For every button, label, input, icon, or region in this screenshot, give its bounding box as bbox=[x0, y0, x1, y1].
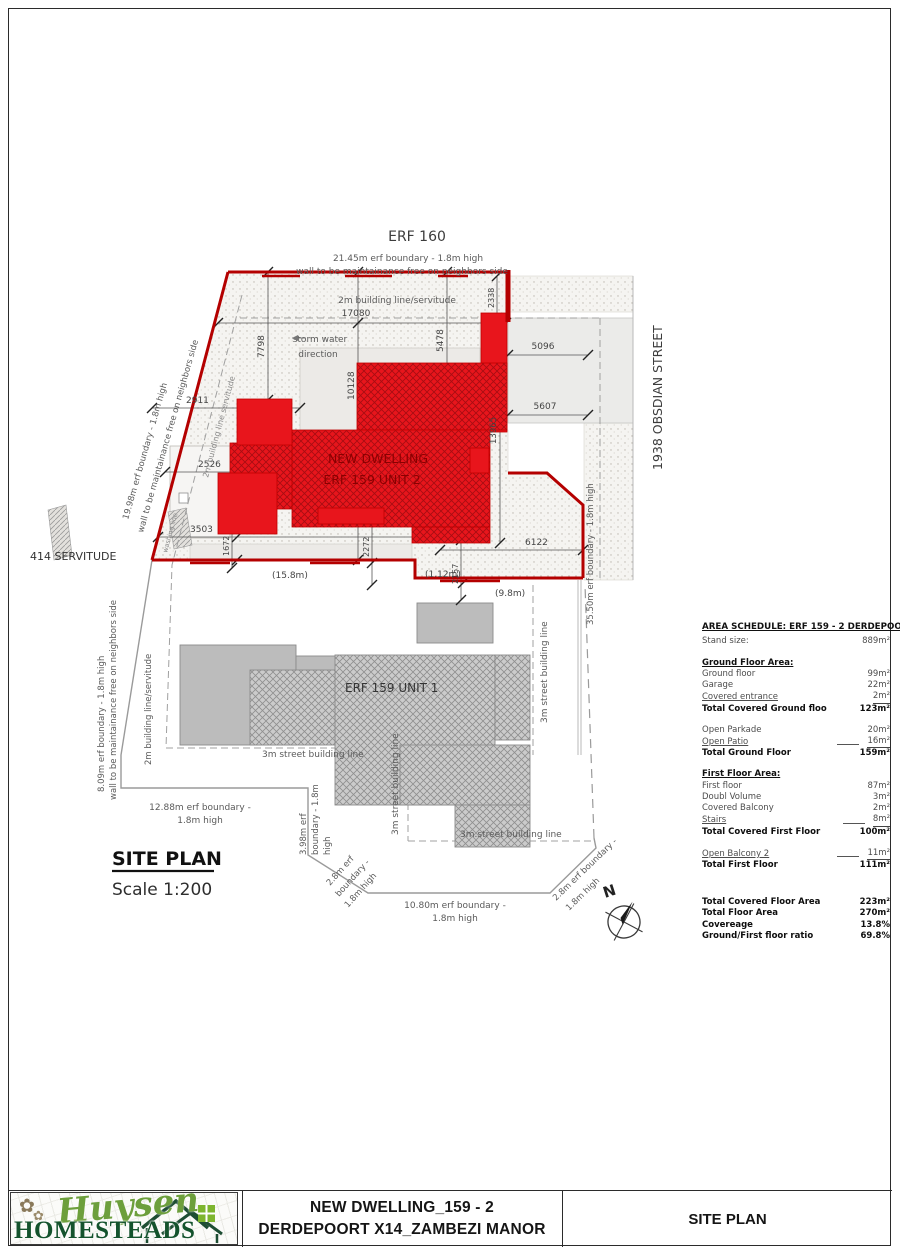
schedule-row: First floor87m² bbox=[702, 781, 890, 792]
schedule-row-label: Ground floor bbox=[702, 669, 867, 680]
svg-text:boundary - 1.8m: boundary - 1.8m bbox=[311, 784, 321, 855]
footer-separator bbox=[8, 1190, 892, 1191]
svg-text:2911: 2911 bbox=[186, 396, 209, 406]
schedule-row: Ground Floor Area: bbox=[702, 658, 890, 669]
svg-text:3.98m erf: 3.98m erf bbox=[299, 812, 309, 855]
schedule-row-label: Covereage bbox=[702, 920, 861, 931]
area-schedule-rows: Stand size:889m²Ground Floor Area:Ground… bbox=[702, 636, 890, 942]
area-schedule-title: AREA SCHEDULE: ERF 159 - 2 DERDEPOORT X1… bbox=[702, 622, 890, 633]
schedule-row: First Floor Area: bbox=[702, 769, 890, 780]
schedule-row-value: 159m² bbox=[860, 748, 890, 759]
schedule-row-label: Open Balcony 2 bbox=[702, 849, 837, 860]
svg-text:Scale 1:200: Scale 1:200 bbox=[112, 880, 212, 900]
svg-text:1.8m high: 1.8m high bbox=[177, 816, 223, 826]
svg-text:10.80m erf boundary -: 10.80m erf boundary - bbox=[404, 901, 506, 911]
svg-text:21.45m erf boundary - 1.8m hig: 21.45m erf boundary - 1.8m high bbox=[333, 254, 483, 264]
svg-text:3503: 3503 bbox=[190, 525, 213, 535]
schedule-row: Ground floor99m² bbox=[702, 669, 890, 680]
schedule-row: Covered Balcony2m² bbox=[702, 803, 890, 814]
svg-text:1672: 1672 bbox=[222, 536, 231, 556]
svg-text:NEW DWELLING: NEW DWELLING bbox=[328, 451, 428, 466]
project-title-line2: DERDEPOORT X14_ZAMBEZI MANOR bbox=[258, 1219, 545, 1241]
site-plan-page: ERF 159 UNIT 1 bbox=[0, 0, 900, 1254]
schedule-row-value: 889m² bbox=[862, 636, 890, 647]
schedule-row-value: 8m² bbox=[873, 814, 890, 826]
svg-text:5607: 5607 bbox=[534, 402, 557, 412]
servitude-label: 414 SERVITUDE bbox=[30, 550, 116, 563]
schedule-row-value: 16m² bbox=[867, 736, 890, 748]
footer-divider-1 bbox=[242, 1190, 243, 1247]
north-label: N bbox=[601, 881, 619, 902]
svg-text:5096: 5096 bbox=[532, 342, 555, 352]
schedule-row: Ground/First floor ratio69.8% bbox=[702, 931, 890, 942]
drawing-title: SITE PLAN Scale 1:200 bbox=[112, 848, 222, 900]
project-title-line1: NEW DWELLING_159 - 2 bbox=[310, 1197, 494, 1219]
svg-text:3m street building line: 3m street building line bbox=[391, 733, 401, 835]
svg-text:3m street building line: 3m street building line bbox=[540, 621, 550, 723]
schedule-row: Open Balcony 211m² bbox=[702, 848, 890, 860]
schedule-row-value: 111m² bbox=[860, 860, 890, 871]
svg-text:1.8m high: 1.8m high bbox=[432, 914, 478, 924]
area-schedule: AREA SCHEDULE: ERF 159 - 2 DERDEPOORT X1… bbox=[702, 622, 890, 942]
schedule-row-label: Covered Balcony bbox=[702, 803, 873, 814]
schedule-row: Stairs8m² bbox=[702, 814, 890, 826]
north-arrow: N bbox=[596, 881, 653, 951]
unit1-label: ERF 159 UNIT 1 bbox=[345, 681, 438, 695]
svg-text:3m street building line: 3m street building line bbox=[262, 750, 364, 760]
svg-text:8.09m erf boundary - 1.8m high: 8.09m erf boundary - 1.8m high bbox=[97, 656, 107, 792]
svg-text:ERF 159 UNIT 2: ERF 159 UNIT 2 bbox=[323, 472, 420, 487]
schedule-row-value: 2m² bbox=[873, 691, 890, 703]
svg-text:wall to be maintainance free o: wall to be maintainance free on neighbor… bbox=[296, 267, 508, 277]
svg-text:35.50m erf boundary - 1.8m hig: 35.50m erf boundary - 1.8m high bbox=[586, 483, 596, 625]
svg-text:13965: 13965 bbox=[489, 417, 499, 444]
footer-divider-2 bbox=[562, 1190, 563, 1247]
schedule-leader-dash bbox=[837, 856, 859, 857]
schedule-row-label: Open Patio bbox=[702, 737, 837, 748]
schedule-row: Stand size:889m² bbox=[702, 636, 890, 647]
schedule-row-value: 123m² bbox=[860, 704, 890, 715]
schedule-row: Total Ground Floor159m² bbox=[702, 748, 890, 759]
schedule-row-label: Total Covered Ground floo bbox=[702, 704, 860, 715]
schedule-row: Garage22m² bbox=[702, 680, 890, 691]
svg-text:2338: 2338 bbox=[487, 288, 496, 308]
schedule-row-label: First floor bbox=[702, 781, 867, 792]
schedule-row-value: 69.8% bbox=[861, 931, 891, 942]
svg-text:(9.8m): (9.8m) bbox=[495, 589, 525, 599]
schedule-row-label: Garage bbox=[702, 680, 867, 691]
schedule-row-label: Total Covered First Floor bbox=[702, 827, 860, 838]
svg-text:SITE PLAN: SITE PLAN bbox=[112, 848, 222, 870]
schedule-row: Total Covered Floor Area223m² bbox=[702, 897, 890, 908]
svg-text:2272: 2272 bbox=[362, 537, 371, 557]
schedule-row-label: First Floor Area: bbox=[702, 769, 890, 780]
schedule-row-label: Open Parkade bbox=[702, 725, 867, 736]
schedule-row-value: 99m² bbox=[867, 669, 890, 680]
svg-text:2m building line/servitude: 2m building line/servitude bbox=[144, 654, 154, 765]
schedule-row-label: Total Covered Floor Area bbox=[702, 897, 860, 908]
svg-text:6122: 6122 bbox=[525, 538, 548, 548]
erf160-label: ERF 160 bbox=[388, 229, 446, 245]
schedule-row-label: Stand size: bbox=[702, 636, 862, 647]
company-logo: ✿ ✿ Huysen HOMESTEADS bbox=[10, 1192, 238, 1245]
schedule-row: Total Floor Area270m² bbox=[702, 908, 890, 919]
schedule-row-label: Ground/First floor ratio bbox=[702, 931, 861, 942]
schedule-row: Total Covered Ground floo123m² bbox=[702, 704, 890, 715]
schedule-row-label: Doubl Volume bbox=[702, 792, 873, 803]
schedule-row-value: 100m² bbox=[860, 827, 890, 838]
svg-text:(15.8m): (15.8m) bbox=[272, 571, 308, 581]
schedule-row-value: 13.8% bbox=[861, 920, 891, 931]
schedule-row: Open Patio16m² bbox=[702, 736, 890, 748]
svg-text:3m.street building line: 3m.street building line bbox=[460, 830, 562, 840]
svg-text:10128: 10128 bbox=[347, 371, 357, 400]
svg-text:direction: direction bbox=[298, 350, 337, 360]
schedule-row-label: Covered entrance bbox=[702, 692, 873, 703]
schedule-row: Covereage13.8% bbox=[702, 920, 890, 931]
schedule-row-label: Total First Floor bbox=[702, 860, 860, 871]
svg-text:high: high bbox=[323, 836, 333, 855]
schedule-row-label: Ground Floor Area: bbox=[702, 658, 890, 669]
schedule-leader-dash bbox=[837, 744, 859, 745]
schedule-row: Doubl Volume3m² bbox=[702, 792, 890, 803]
svg-text:17080: 17080 bbox=[342, 309, 371, 319]
svg-text:2m building line/servitude: 2m building line/servitude bbox=[338, 296, 456, 306]
street-label: 1938 OBSDIAN STREET bbox=[650, 325, 665, 470]
schedule-row-value: 87m² bbox=[867, 781, 890, 792]
svg-text:storm water: storm water bbox=[293, 335, 348, 345]
svg-text:(1.12m): (1.12m) bbox=[425, 570, 461, 580]
schedule-row: Covered entrance2m² bbox=[702, 691, 890, 703]
schedule-row-value: 223m² bbox=[860, 897, 890, 908]
svg-text:wall to be maintainance free o: wall to be maintainance free on neighbor… bbox=[109, 600, 119, 800]
schedule-row-label: Total Floor Area bbox=[702, 908, 860, 919]
titleblock-project: NEW DWELLING_159 - 2 DERDEPOORT X14_ZAMB… bbox=[244, 1193, 560, 1245]
schedule-row: Total Covered First Floor100m² bbox=[702, 827, 890, 838]
schedule-row-label: Stairs bbox=[702, 815, 843, 826]
schedule-row: Total First Floor111m² bbox=[702, 860, 890, 871]
schedule-row-value: 22m² bbox=[867, 680, 890, 691]
schedule-row-value: 11m² bbox=[867, 848, 890, 860]
svg-text:7798: 7798 bbox=[257, 335, 267, 358]
schedule-row-value: 270m² bbox=[860, 908, 890, 919]
schedule-row-value: 3m² bbox=[873, 792, 890, 803]
schedule-leader-dash bbox=[843, 823, 865, 824]
schedule-row-value: 2m² bbox=[873, 803, 890, 814]
logo-main-text: HOMESTEADS bbox=[14, 1217, 195, 1245]
schedule-row: Open Parkade20m² bbox=[702, 725, 890, 736]
svg-text:5478: 5478 bbox=[436, 329, 446, 352]
schedule-row-label: Total Ground Floor bbox=[702, 748, 860, 759]
svg-text:12.88m erf boundary -: 12.88m erf boundary - bbox=[149, 803, 251, 813]
titleblock-sheet-name: SITE PLAN bbox=[564, 1193, 891, 1245]
schedule-row-value: 20m² bbox=[867, 725, 890, 736]
